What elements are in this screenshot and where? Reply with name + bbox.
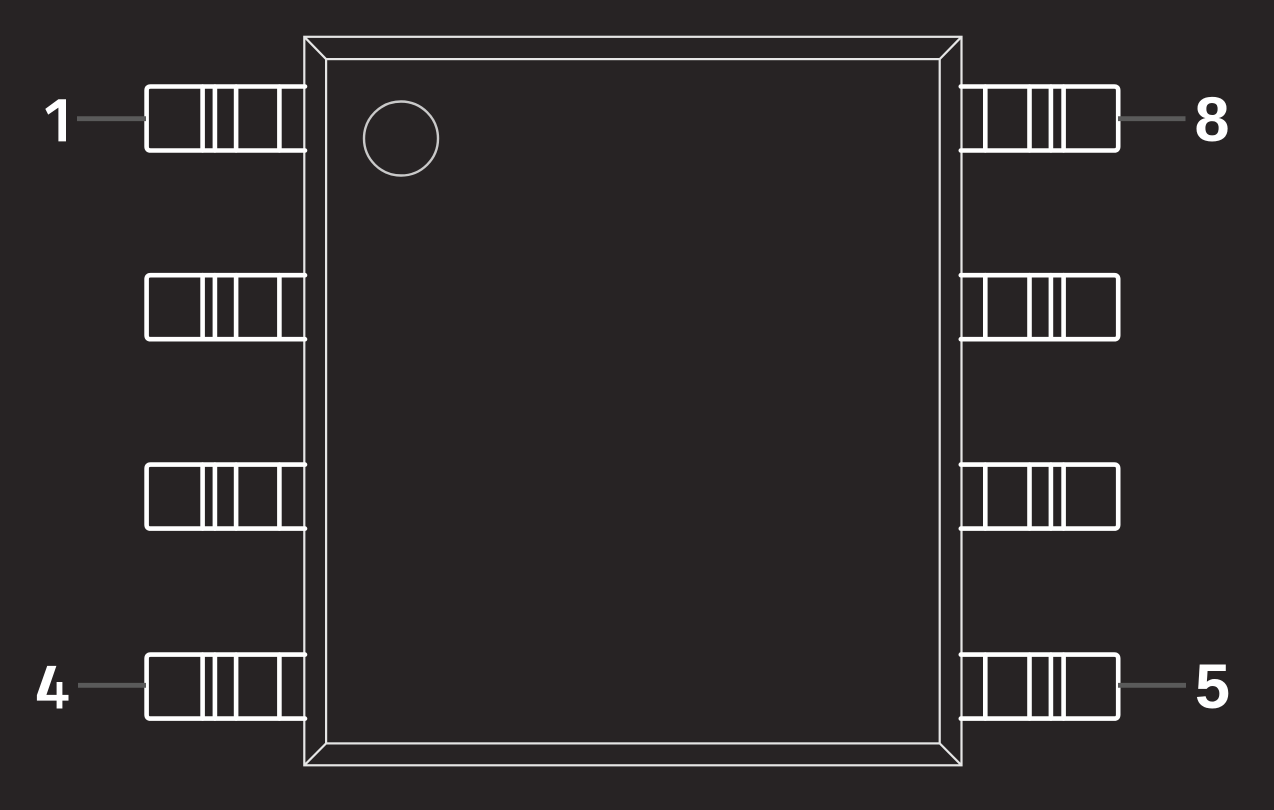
svg-text:5: 5 bbox=[1195, 652, 1230, 722]
svg-text:8: 8 bbox=[1194, 85, 1229, 155]
